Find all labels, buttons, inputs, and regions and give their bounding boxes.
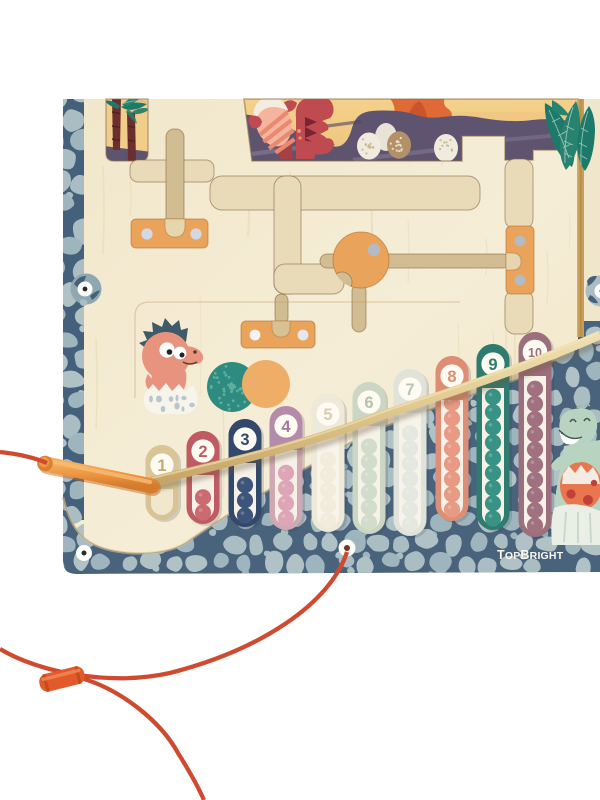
svg-text:6: 6	[364, 394, 373, 412]
svg-text:3: 3	[240, 431, 249, 449]
svg-text:4: 4	[281, 418, 291, 436]
svg-text:1: 1	[157, 457, 166, 475]
svg-text:TOPBRIGHT: TOPBRIGHT	[497, 548, 564, 562]
svg-text:8: 8	[447, 368, 456, 386]
svg-text:5: 5	[323, 406, 332, 424]
svg-text:7: 7	[405, 381, 414, 399]
svg-text:2: 2	[198, 443, 207, 461]
